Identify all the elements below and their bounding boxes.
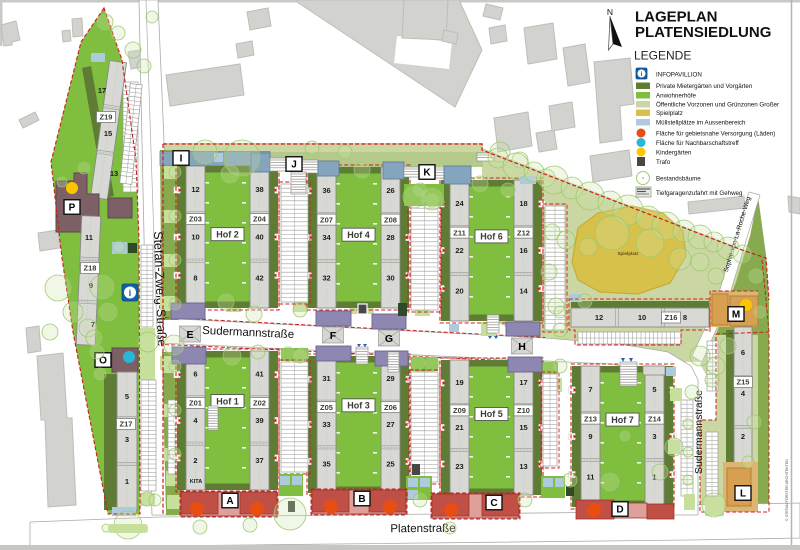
svg-text:E: E bbox=[186, 329, 193, 341]
svg-text:i: i bbox=[129, 288, 132, 299]
svg-text:LEGENDE: LEGENDE bbox=[634, 49, 691, 63]
svg-text:Hof 5: Hof 5 bbox=[480, 409, 503, 419]
svg-text:31: 31 bbox=[322, 374, 330, 383]
svg-text:© STEFAN FORSTER ARCHITEKTEN: © STEFAN FORSTER ARCHITEKTEN bbox=[785, 459, 789, 521]
svg-text:Tiefgaragenzufahrt mit Gehweg: Tiefgaragenzufahrt mit Gehweg bbox=[656, 190, 743, 197]
svg-text:2: 2 bbox=[741, 432, 745, 441]
svg-text:Z03: Z03 bbox=[189, 215, 202, 224]
svg-text:N: N bbox=[607, 7, 613, 17]
svg-text:8: 8 bbox=[683, 313, 687, 322]
svg-text:2: 2 bbox=[193, 456, 197, 465]
svg-text:M: M bbox=[732, 310, 740, 321]
svg-text:L: L bbox=[740, 489, 746, 500]
svg-text:Fläche für Nachbarschaftstreff: Fläche für Nachbarschaftstreff bbox=[656, 140, 739, 147]
svg-text:37: 37 bbox=[255, 456, 263, 465]
svg-text:Z08: Z08 bbox=[384, 215, 397, 224]
svg-text:Z07: Z07 bbox=[320, 215, 333, 224]
svg-text:36: 36 bbox=[322, 186, 330, 195]
svg-text:15: 15 bbox=[104, 129, 112, 138]
svg-text:Hof 1: Hof 1 bbox=[216, 396, 239, 406]
svg-text:3: 3 bbox=[125, 435, 129, 444]
svg-text:I: I bbox=[180, 154, 183, 165]
svg-text:P: P bbox=[69, 203, 76, 214]
svg-text:Öffentliche Vorzonen und Grünz: Öffentliche Vorzonen und Grünzonen Große… bbox=[656, 101, 779, 108]
svg-text:Z01: Z01 bbox=[189, 399, 202, 408]
svg-text:23: 23 bbox=[455, 462, 463, 471]
svg-text:15: 15 bbox=[519, 423, 527, 432]
svg-text:Z04: Z04 bbox=[253, 215, 267, 224]
svg-text:21: 21 bbox=[455, 423, 463, 432]
svg-text:C: C bbox=[490, 498, 497, 509]
svg-text:8: 8 bbox=[193, 274, 197, 283]
svg-text:G: G bbox=[385, 333, 393, 345]
svg-text:29: 29 bbox=[386, 374, 394, 383]
svg-text:Bestandsbäume: Bestandsbäume bbox=[656, 176, 701, 183]
svg-text:16: 16 bbox=[519, 246, 527, 255]
svg-text:Z18: Z18 bbox=[84, 264, 97, 273]
svg-text:Z05: Z05 bbox=[320, 403, 333, 412]
svg-text:11: 11 bbox=[587, 473, 595, 482]
svg-text:24: 24 bbox=[455, 199, 464, 208]
svg-text:Hof 3: Hof 3 bbox=[347, 401, 370, 411]
svg-text:33: 33 bbox=[322, 420, 330, 429]
svg-text:Z14: Z14 bbox=[648, 414, 662, 423]
svg-text:Z13: Z13 bbox=[584, 414, 597, 423]
svg-text:Hof 2: Hof 2 bbox=[216, 229, 239, 239]
svg-text:6: 6 bbox=[193, 369, 197, 378]
svg-text:Z12: Z12 bbox=[517, 228, 530, 237]
svg-text:28: 28 bbox=[386, 233, 394, 242]
svg-text:Z09: Z09 bbox=[453, 406, 466, 415]
svg-text:Z15: Z15 bbox=[737, 378, 750, 387]
svg-text:Z16: Z16 bbox=[665, 313, 678, 322]
svg-text:Hof 4: Hof 4 bbox=[347, 230, 370, 240]
svg-text:Z19: Z19 bbox=[100, 113, 113, 122]
svg-text:11: 11 bbox=[85, 233, 93, 242]
svg-text:Trafo: Trafo bbox=[656, 159, 671, 166]
svg-text:35: 35 bbox=[322, 460, 330, 469]
svg-text:Spielplatz: Spielplatz bbox=[617, 251, 639, 256]
svg-text:22: 22 bbox=[455, 246, 463, 255]
svg-text:25: 25 bbox=[386, 460, 394, 469]
svg-text:3: 3 bbox=[652, 432, 656, 441]
svg-text:5: 5 bbox=[652, 385, 656, 394]
svg-text:Z10: Z10 bbox=[517, 406, 530, 415]
svg-text:17: 17 bbox=[98, 86, 106, 95]
svg-text:26: 26 bbox=[386, 186, 394, 195]
svg-text:K: K bbox=[423, 168, 431, 179]
svg-text:7: 7 bbox=[588, 385, 592, 394]
svg-text:39: 39 bbox=[255, 416, 263, 425]
svg-text:KITA: KITA bbox=[190, 479, 202, 485]
svg-text:Private Mietergärten und Vorgä: Private Mietergärten und Vorgärten bbox=[656, 83, 753, 90]
svg-text:27: 27 bbox=[386, 420, 394, 429]
svg-text:Müllstellplätze im Aussenberei: Müllstellplätze im Aussenbereich bbox=[656, 119, 746, 126]
svg-text:LAGEPLAN: LAGEPLAN bbox=[635, 8, 718, 25]
svg-text:18: 18 bbox=[519, 199, 527, 208]
svg-text:Z02: Z02 bbox=[253, 399, 266, 408]
svg-text:Anwohnerhöfe: Anwohnerhöfe bbox=[656, 92, 696, 99]
svg-text:32: 32 bbox=[322, 274, 330, 283]
svg-text:Spielplatz: Spielplatz bbox=[656, 110, 683, 117]
svg-text:10: 10 bbox=[638, 313, 646, 322]
svg-text:Hof 6: Hof 6 bbox=[480, 232, 503, 242]
svg-text:D: D bbox=[616, 505, 623, 516]
svg-text:Z06: Z06 bbox=[384, 403, 397, 412]
svg-text:12: 12 bbox=[191, 185, 199, 194]
svg-text:B: B bbox=[358, 494, 365, 505]
svg-text:40: 40 bbox=[255, 232, 263, 241]
svg-text:19: 19 bbox=[455, 378, 463, 387]
svg-text:J: J bbox=[291, 160, 297, 171]
svg-text:38: 38 bbox=[255, 185, 263, 194]
svg-text:42: 42 bbox=[255, 274, 263, 283]
svg-text:F: F bbox=[330, 330, 337, 342]
svg-text:Fläche für gebietsnahe Versorg: Fläche für gebietsnahe Versorgung (Läden… bbox=[656, 131, 775, 138]
svg-text:Z17: Z17 bbox=[120, 420, 133, 429]
svg-text:i: i bbox=[641, 71, 643, 78]
svg-text:10: 10 bbox=[191, 232, 199, 241]
svg-text:34: 34 bbox=[322, 233, 331, 242]
svg-text:INFOPAVILLION: INFOPAVILLION bbox=[656, 72, 702, 79]
svg-text:Sudermannstraße: Sudermannstraße bbox=[693, 390, 705, 474]
svg-text:PLATENSIEDLUNG: PLATENSIEDLUNG bbox=[635, 24, 771, 41]
svg-text:Hof 7: Hof 7 bbox=[611, 415, 634, 425]
svg-text:13: 13 bbox=[110, 169, 118, 178]
svg-text:14: 14 bbox=[519, 287, 528, 296]
svg-text:9: 9 bbox=[588, 432, 592, 441]
svg-text:17: 17 bbox=[519, 378, 527, 387]
svg-text:A: A bbox=[226, 496, 233, 507]
svg-text:20: 20 bbox=[455, 287, 463, 296]
svg-text:1: 1 bbox=[125, 477, 129, 486]
svg-text:Kindergärten: Kindergärten bbox=[656, 150, 692, 157]
svg-text:13: 13 bbox=[519, 462, 527, 471]
svg-text:30: 30 bbox=[386, 274, 394, 283]
svg-text:Z11: Z11 bbox=[453, 228, 466, 237]
svg-text:5: 5 bbox=[125, 392, 129, 401]
svg-text:41: 41 bbox=[255, 369, 263, 378]
svg-text:6: 6 bbox=[741, 348, 745, 357]
svg-text:H: H bbox=[518, 341, 526, 353]
svg-text:12: 12 bbox=[595, 313, 603, 322]
